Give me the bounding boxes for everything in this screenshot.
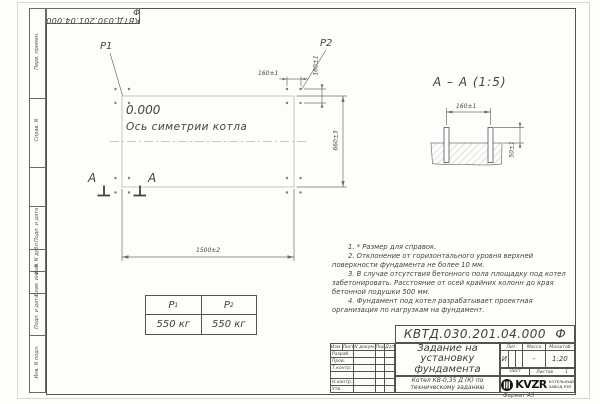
drawing-sheet: { "corner_stamp": { "doc_number": "КВТД.… — [0, 0, 600, 400]
load-table-value-p2: 550 кг — [202, 314, 258, 335]
sheets-label: Листов — [536, 370, 553, 375]
scale-label: Масштаб — [546, 344, 574, 350]
section-letter-right: А — [148, 171, 156, 185]
dim-bolt-spacing-vertical: 160±1 — [313, 24, 320, 108]
scale-value: 1:20 — [546, 351, 574, 367]
row-prov: Пров. — [331, 358, 354, 364]
sheets-value: 1 — [565, 370, 568, 375]
row-utv: Утв. — [331, 386, 354, 392]
format-label: Формат А3 — [503, 393, 534, 399]
load-table-header-p1: Р1 — [145, 295, 202, 315]
note-1: 1. * Размер для справок. — [332, 243, 570, 252]
dim-foundation-width: 1500±2 — [196, 247, 220, 254]
elevation-mark: 0.000 — [126, 103, 160, 117]
lit-value: И — [501, 351, 509, 367]
titleblock-sheet-row: Лист Листов 1 — [500, 368, 575, 376]
col-podp: Подп. — [376, 344, 386, 350]
titleblock-title: Задание на установку фундамента — [406, 344, 489, 376]
row-nkontr: Н.контр. — [331, 379, 354, 385]
brand-sub-line2: ЗАВОД РЭП — [549, 385, 574, 389]
load-point-p1-label: Р1 — [100, 41, 112, 52]
dim-foundation-height: 660±3 — [333, 99, 340, 183]
notes-block: 1. * Размер для справок. 2. Отклонение о… — [332, 243, 570, 315]
titleblock-subtitle: Котел КВ-0,35 Д (К) по техническому зада… — [404, 378, 491, 392]
mass-label: Масса — [523, 344, 545, 350]
note-3: 3. В случае отсутствия бетонного пола пл… — [332, 270, 570, 297]
titleblock-docnumber: КВТД.030.201.04.000 Ф — [404, 327, 566, 341]
titleblock-brand-cell: KVZR КОТЕЛЬНЫЙ ЗАВОД РЭП — [500, 376, 575, 393]
note-2: 2. Отклонение от горизонтального уровня … — [332, 252, 570, 270]
row-tkontr: Т.контр. — [331, 365, 354, 371]
row-blank — [331, 372, 354, 378]
section-letter-left: А — [88, 171, 96, 185]
titleblock-subtitle-cell: Котел КВ-0,35 Д (К) по техническому зада… — [395, 376, 500, 393]
titleblock-title-cell: Задание на установку фундамента — [395, 343, 500, 376]
brand-name: KVZR — [515, 378, 546, 391]
load-point-p2-label: Р2 — [320, 38, 332, 49]
dim-bolt-protrusion: 50±1 — [509, 108, 516, 192]
titleblock-lit-mass-scale: Лит. Масса Масштаб И - 1:20 — [500, 343, 575, 368]
mass-value: - — [523, 351, 545, 367]
col-izm: Изм. — [331, 344, 343, 350]
titleblock-docnumber-cell: КВТД.030.201.04.000 Ф — [395, 325, 575, 343]
dim-bolt-spacing-horizontal: 160±1 — [258, 70, 278, 77]
section-view-geometry — [431, 128, 502, 166]
titleblock-signature-grid: Изм. Лист N докум. Подп. Дата Разраб. Пр… — [330, 343, 395, 393]
kvzr-logo-icon — [501, 379, 513, 391]
boiler-axis-label: Ось симетрии котла — [126, 121, 247, 133]
load-table-value-p1: 550 кг — [145, 314, 202, 335]
load-table-header-p2: Р2 — [202, 295, 258, 315]
col-ndokum: N докум. — [354, 344, 375, 350]
lit-label: Лит. — [501, 344, 523, 350]
dim-section-bolt-spacing: 160±1 — [456, 103, 476, 110]
row-razrab: Разраб. — [331, 351, 354, 357]
section-view-title: А – А (1:5) — [433, 75, 507, 89]
col-list: Лист — [343, 344, 355, 350]
col-data: Дата — [385, 344, 394, 350]
load-table: Р1 Р2 550 кг 550 кг — [145, 295, 257, 335]
note-4: 4. Фундамент под котел разрабатывает про… — [332, 297, 570, 315]
sheet-label: Лист — [501, 369, 530, 375]
